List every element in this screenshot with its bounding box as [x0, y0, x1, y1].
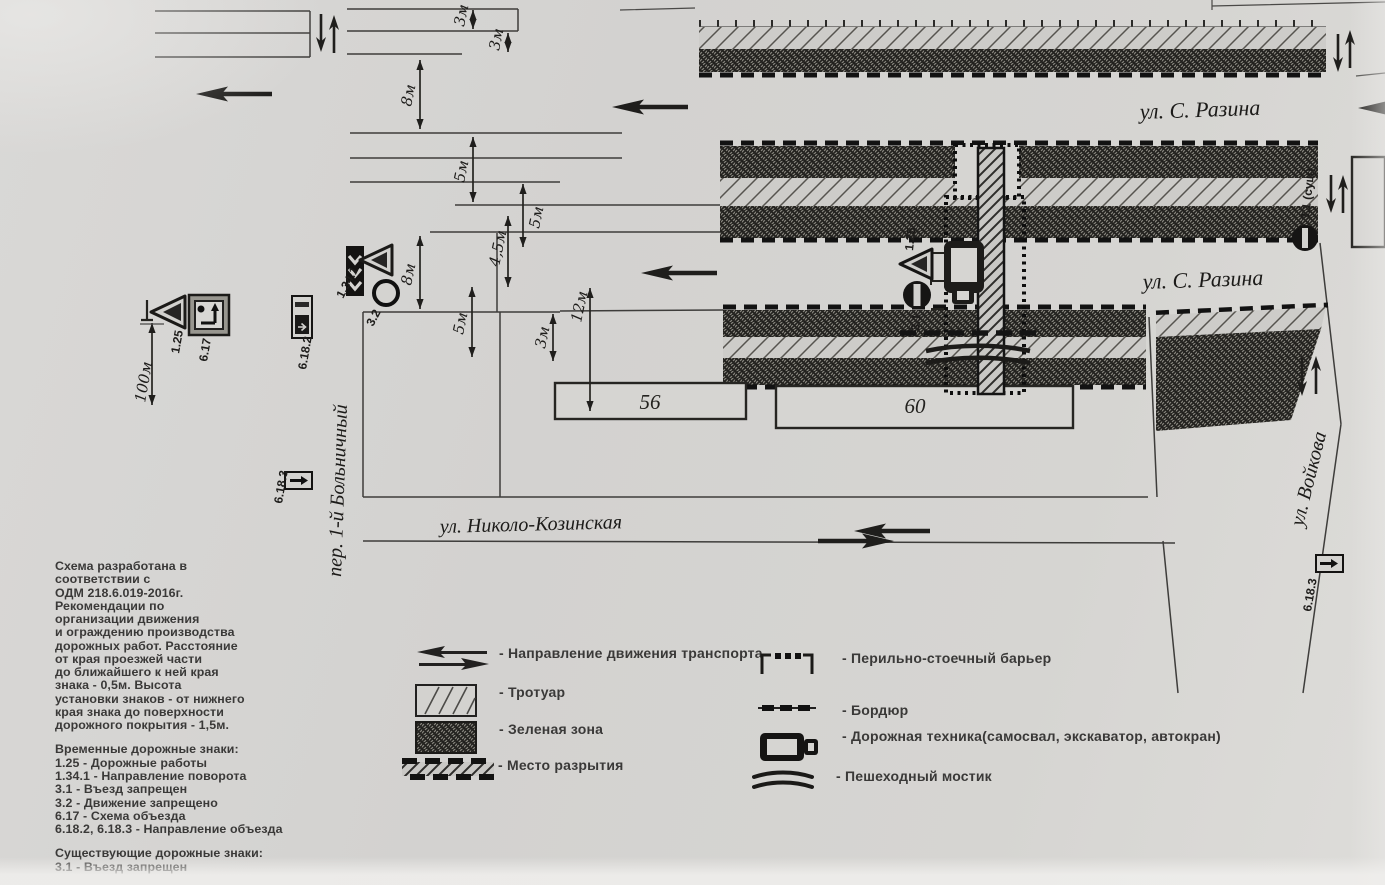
sidewalk-hatch — [699, 27, 1326, 49]
notes-intro: Схема разработана в соответствии с ОДМ 2… — [55, 560, 330, 732]
notes-temporary-signs: Временные дорожные знаки: 1.25 - Дорожны… — [55, 743, 330, 836]
traffic-arrow — [1311, 356, 1321, 394]
sign-label-6183-left: 6.18.3 — [271, 469, 291, 505]
no-entry-sign — [1292, 225, 1318, 251]
traffic-arrow — [1345, 30, 1355, 68]
traffic-arrow — [1326, 175, 1336, 213]
sidewalk-green-band-top — [699, 24, 1326, 75]
scanned-scheme-page: 3м 3м 8м 5м 5м 4,5м 8м 5м 3м 12м 100м — [0, 0, 1385, 885]
road-works-sign — [900, 249, 932, 279]
dimension-label: 12м — [567, 289, 591, 324]
traffic-arrow — [641, 266, 717, 281]
street-label-razina-top: ул. С. Разина — [1137, 95, 1260, 124]
dimension-label: 4,5м — [485, 229, 510, 269]
road-edge-lines-mid — [350, 133, 723, 497]
street-label-razina-mid: ул. С. Разина — [1140, 265, 1263, 294]
legend-item-label: - Перильно-стоечный барьер — [842, 650, 1051, 666]
dimension-label: 8м — [397, 262, 419, 287]
legend-item: - Пешеходный мостик — [752, 768, 992, 784]
no-vehicles-sign — [374, 281, 398, 305]
sign-label-31-center: 3.1 — [908, 313, 924, 331]
sign-label-6182: 6.18.2 — [295, 335, 315, 371]
traffic-arrow — [1358, 101, 1385, 116]
street-label-nikolo-kozinskaya: ул. Николо-Козинская — [438, 511, 623, 538]
detour-scheme-sign — [189, 295, 229, 335]
sign-label-6183-right: 6.18.3 — [1300, 577, 1320, 613]
traffic-arrow — [1333, 34, 1343, 72]
legend-item: - Дорожная техника(самосвал, экскаватор,… — [758, 728, 1221, 744]
notes-existing-signs: Существующие дорожные знаки: 3.1 - Въезд… — [55, 847, 330, 874]
legend-item: - Бордюр — [758, 702, 908, 718]
legend-item-label: - Направление движения транспорта — [499, 645, 763, 661]
no-entry-sign — [903, 281, 931, 309]
legend-item: - Зеленая зона — [415, 721, 603, 737]
sign-label-617: 6.17 — [196, 337, 214, 363]
dimension-label: 5м — [449, 311, 471, 336]
road-works-sign — [360, 245, 392, 275]
dimension-label: 8м — [397, 83, 419, 108]
notes-block: Схема разработана в соответствии с ОДМ 2… — [55, 560, 330, 885]
legend-item-label: - Пешеходный мостик — [836, 768, 992, 784]
building-number-60: 60 — [905, 394, 927, 418]
legend-item-label: - Место разрытия — [498, 757, 624, 773]
legend-item-label: - Тротуар — [499, 684, 565, 700]
legend-item-label: - Бордюр — [842, 702, 908, 718]
legend-item-label: - Зеленая зона — [499, 721, 603, 737]
dimension-label: 3м — [450, 3, 472, 28]
traffic-arrow — [1338, 175, 1348, 213]
dimension-label: 5м — [450, 159, 472, 184]
traffic-arrow — [329, 15, 339, 53]
sidewalk-green-band-south — [723, 307, 1146, 387]
traffic-arrow — [612, 100, 688, 115]
traffic-arrow — [316, 14, 326, 52]
legend-item: - Перильно-стоечный барьер — [758, 650, 1051, 666]
legend-item: - Место разрытия — [402, 757, 624, 773]
legend-item-label: - Дорожная техника(самосвал, экскаватор,… — [842, 728, 1221, 744]
dimension-label: 3м — [531, 325, 553, 350]
dimension-label: 3м — [485, 27, 507, 52]
street-label-bolnichny: пер. 1-й Больничный — [324, 404, 352, 577]
traffic-arrow — [196, 87, 272, 102]
legend-item: - Направление движения транспорта — [415, 645, 763, 661]
sign-label-32: 3.2 — [363, 307, 383, 329]
green-zone-hatch — [699, 49, 1326, 72]
sign-label-125-left: 1.25 — [168, 329, 186, 355]
legend-item: - Тротуар — [415, 684, 565, 700]
building-number-56: 56 — [640, 390, 662, 414]
detour-direction-sign — [1316, 555, 1343, 572]
sign-label-125-center: 1.25 — [902, 226, 918, 251]
building-right — [1352, 157, 1385, 247]
detour-direction-sign — [292, 296, 312, 338]
street-label-voykova: ул. Войкова — [1286, 429, 1331, 530]
road-works-sign — [151, 296, 185, 328]
dimension-label: 5м — [525, 205, 547, 230]
